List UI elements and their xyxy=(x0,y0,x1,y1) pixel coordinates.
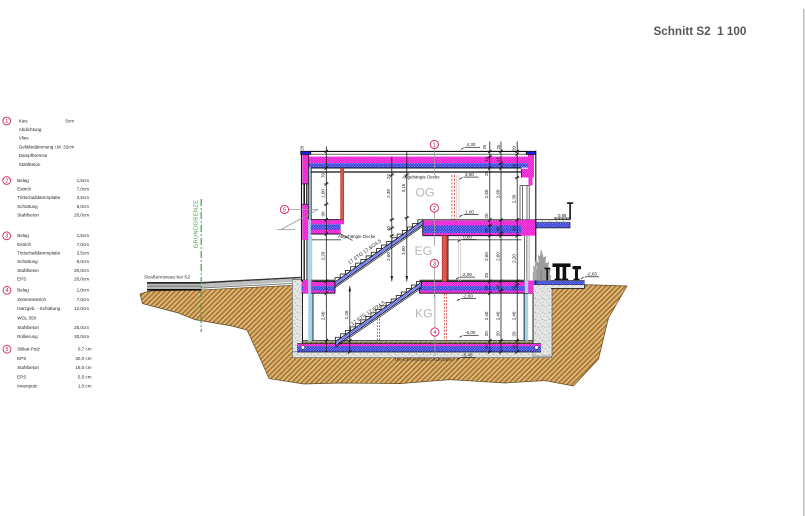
svg-text:Abgehängte Decke: Abgehängte Decke xyxy=(402,175,440,180)
svg-text:Belag: Belag xyxy=(17,178,29,183)
svg-text:-2,60: -2,60 xyxy=(463,293,474,298)
svg-text:Schnitt S2 1 100: Schnitt S2 1 100 xyxy=(654,25,747,38)
svg-text:20,0cm: 20,0cm xyxy=(74,277,89,282)
svg-text:20,0cm: 20,0cm xyxy=(74,213,89,218)
svg-text:Harzgeb. - Schüttung: Harzgeb. - Schüttung xyxy=(17,306,60,311)
svg-text:12,0cm: 12,0cm xyxy=(74,306,89,311)
svg-text:2,40: 2,40 xyxy=(495,311,500,320)
svg-text:2,60: 2,60 xyxy=(495,189,500,198)
svg-text:1,0cm: 1,0cm xyxy=(77,288,90,293)
svg-text:GRUNDGRENZE: GRUNDGRENZE xyxy=(194,200,200,249)
svg-text:2,60: 2,60 xyxy=(484,252,489,261)
svg-text:7,0cm: 7,0cm xyxy=(77,187,90,192)
svg-text:20: 20 xyxy=(484,171,489,177)
svg-text:2,20: 2,20 xyxy=(512,254,517,263)
svg-text:30,0 cm: 30,0 cm xyxy=(75,356,91,361)
svg-text:45: 45 xyxy=(512,344,517,350)
svg-text:5,5 cm: 5,5 cm xyxy=(78,374,92,379)
svg-text:Silikat-Putz: Silikat-Putz xyxy=(17,347,40,352)
svg-text:4,30: 4,30 xyxy=(467,142,476,147)
svg-text:Belag: Belag xyxy=(17,288,29,293)
svg-text:20: 20 xyxy=(512,331,517,337)
svg-text:Trittschalldämmplatte: Trittschalldämmplatte xyxy=(17,251,61,256)
svg-text:2,38: 2,38 xyxy=(386,189,391,198)
svg-text:1: 1 xyxy=(433,143,436,149)
svg-text:2,40: 2,40 xyxy=(512,311,517,320)
svg-text:Kies: Kies xyxy=(19,118,29,123)
svg-text:40: 40 xyxy=(512,226,517,232)
svg-text:Estrich: Estrich xyxy=(17,187,31,192)
svg-text:16: 16 xyxy=(484,157,489,163)
svg-text:16,0 cm: 16,0 cm xyxy=(75,365,91,370)
svg-text:24: 24 xyxy=(512,163,517,169)
svg-text:TRAGFÄHIGEM GRÜNDEN /: TRAGFÄHIGEM GRÜNDEN / xyxy=(394,356,455,362)
svg-text:70: 70 xyxy=(321,173,326,179)
svg-text:OG: OG xyxy=(416,186,435,200)
svg-text:Stahlbeton: Stahlbeton xyxy=(17,213,39,218)
svg-text:Abgehängte Decke: Abgehängte Decke xyxy=(338,234,376,239)
svg-text:1,5cm: 1,5cm xyxy=(77,178,90,183)
svg-text:Dampfbremse: Dampfbremse xyxy=(19,153,48,158)
svg-text:2,40: 2,40 xyxy=(484,311,489,320)
svg-text:26: 26 xyxy=(482,144,487,149)
svg-text:2,60: 2,60 xyxy=(484,189,489,198)
svg-text:Zementestrich: Zementestrich xyxy=(17,297,46,302)
svg-text:1,5cm: 1,5cm xyxy=(77,233,90,238)
svg-text:2: 2 xyxy=(433,206,436,212)
svg-text:Stahlbeton: Stahlbeton xyxy=(17,365,39,370)
svg-text:30: 30 xyxy=(484,285,489,291)
svg-text:2,60: 2,60 xyxy=(495,252,500,261)
svg-text:30: 30 xyxy=(484,228,489,234)
svg-text:3,00: 3,00 xyxy=(401,246,406,255)
svg-text:45: 45 xyxy=(484,344,489,350)
svg-text:16: 16 xyxy=(495,157,500,163)
svg-text:3,5cm: 3,5cm xyxy=(77,251,90,256)
svg-text:Belag: Belag xyxy=(17,233,29,238)
svg-text:22: 22 xyxy=(386,174,391,180)
svg-text:40: 40 xyxy=(495,284,500,290)
svg-text:Gefälledämmung i.M. 32cm: Gefälledämmung i.M. 32cm xyxy=(19,144,75,149)
svg-text:1: 1 xyxy=(5,119,8,125)
svg-text:1,00: 1,00 xyxy=(465,209,474,214)
svg-text:0,7 cm: 0,7 cm xyxy=(78,347,92,352)
svg-text:WGL 050: WGL 050 xyxy=(17,316,37,321)
svg-text:20,0cm: 20,0cm xyxy=(74,268,89,273)
svg-text:Schüttung: Schüttung xyxy=(17,259,38,264)
svg-text:Innenputz: Innenputz xyxy=(17,384,38,389)
svg-text:EPS: EPS xyxy=(17,277,26,282)
svg-text:-5,45: -5,45 xyxy=(462,352,473,357)
svg-text:2,30: 2,30 xyxy=(512,194,517,203)
svg-text:20: 20 xyxy=(484,213,489,219)
svg-text:3,60: 3,60 xyxy=(465,172,474,177)
svg-text:2,60: 2,60 xyxy=(386,252,391,261)
svg-text:2,26: 2,26 xyxy=(344,310,349,319)
svg-text:2,20: 2,20 xyxy=(321,251,326,260)
svg-text:40: 40 xyxy=(386,226,391,232)
svg-text:Abdichtung: Abdichtung xyxy=(19,127,42,132)
svg-text:Trittschalldämmplatte: Trittschalldämmplatte xyxy=(17,195,61,200)
svg-text:5: 5 xyxy=(6,347,9,353)
svg-text:8,0cm: 8,0cm xyxy=(77,204,90,209)
svg-text:Stahlbeton: Stahlbeton xyxy=(17,268,39,273)
svg-text:1,0 cm: 1,0 cm xyxy=(78,384,92,389)
svg-text:20: 20 xyxy=(484,273,489,279)
svg-text:2,40: 2,40 xyxy=(321,311,326,320)
svg-text:3: 3 xyxy=(5,234,8,240)
svg-text:20: 20 xyxy=(495,331,500,337)
svg-text:Vlies: Vlies xyxy=(19,136,30,141)
svg-text:30,0cm: 30,0cm xyxy=(74,334,89,339)
svg-text:3,5cm: 3,5cm xyxy=(77,195,90,200)
svg-text:26: 26 xyxy=(496,144,501,149)
svg-text:EPS: EPS xyxy=(17,374,26,379)
svg-text:EG: EG xyxy=(415,244,433,258)
svg-text:7,0cm: 7,0cm xyxy=(77,242,90,247)
svg-text:Rollierung: Rollierung xyxy=(17,334,38,339)
svg-text:40: 40 xyxy=(495,226,500,232)
svg-text:2: 2 xyxy=(5,178,8,184)
svg-text:EPS: EPS xyxy=(17,356,26,361)
svg-text:90: 90 xyxy=(321,211,326,217)
svg-text:5cm: 5cm xyxy=(65,118,74,123)
svg-text:5: 5 xyxy=(283,208,286,214)
svg-text:0,88: 0,88 xyxy=(558,213,567,218)
svg-text:-5,00: -5,00 xyxy=(465,330,476,335)
svg-text:0,60: 0,60 xyxy=(463,234,472,239)
svg-text:20: 20 xyxy=(512,146,517,152)
svg-text:26: 26 xyxy=(300,145,305,150)
svg-text:3: 3 xyxy=(433,261,436,267)
svg-text:KG: KG xyxy=(415,307,433,321)
svg-text:Schüttung: Schüttung xyxy=(17,204,38,209)
svg-text:Stahlbeton: Stahlbeton xyxy=(19,162,41,167)
svg-text:8,0cm: 8,0cm xyxy=(77,259,90,264)
svg-text:7,0cm: 7,0cm xyxy=(77,297,90,302)
svg-text:4: 4 xyxy=(433,330,436,336)
svg-text:-2,00: -2,00 xyxy=(462,272,473,277)
svg-text:25,0cm: 25,0cm xyxy=(74,325,89,330)
svg-text:1,00: 1,00 xyxy=(321,189,326,198)
svg-text:-2,03: -2,03 xyxy=(587,272,598,277)
svg-text:Straßenniveau bei S2: Straßenniveau bei S2 xyxy=(144,275,190,281)
svg-text:60: 60 xyxy=(512,285,517,291)
svg-text:3,15: 3,15 xyxy=(401,183,406,192)
svg-text:20: 20 xyxy=(484,331,489,337)
svg-text:4: 4 xyxy=(6,288,9,294)
svg-text:Estrich: Estrich xyxy=(17,242,31,247)
svg-text:Stahlbeton: Stahlbeton xyxy=(17,325,39,330)
